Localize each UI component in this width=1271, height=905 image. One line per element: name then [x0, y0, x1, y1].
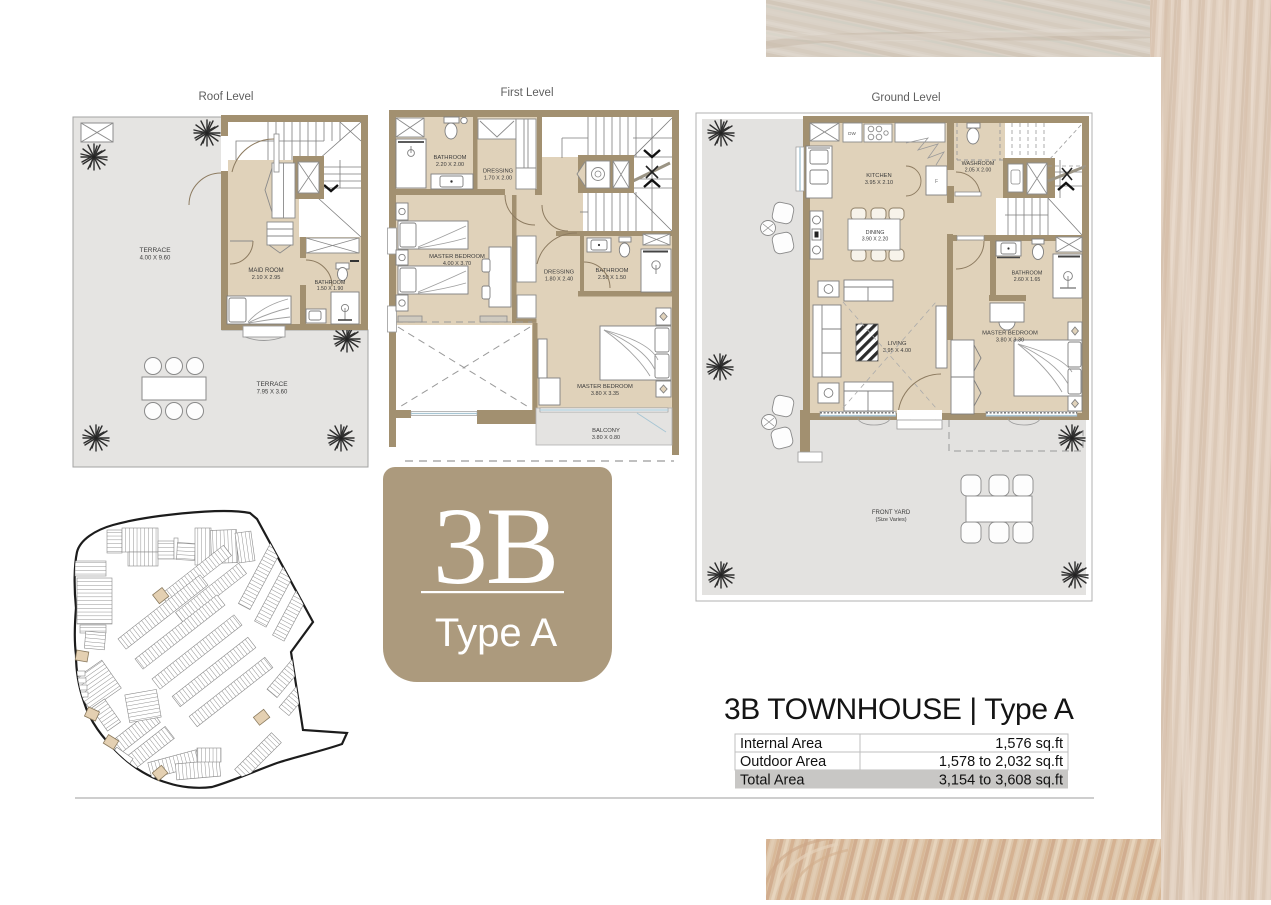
svg-text:MASTER BEDROOM: MASTER BEDROOM [982, 331, 1038, 337]
svg-text:DRESSING: DRESSING [544, 270, 575, 276]
svg-text:3.80 X 3.35: 3.80 X 3.35 [591, 391, 619, 397]
svg-text:DW: DW [848, 131, 856, 136]
svg-text:1,576 sq.ft: 1,576 sq.ft [995, 736, 1063, 752]
svg-text:4.00 X 3.70: 4.00 X 3.70 [443, 261, 471, 267]
svg-text:Ground Level: Ground Level [871, 92, 940, 104]
svg-text:3B: 3B [433, 485, 557, 607]
svg-text:(Size Varies): (Size Varies) [875, 517, 906, 523]
svg-text:Roof Level: Roof Level [199, 91, 254, 103]
svg-text:1.50 X 1.90: 1.50 X 1.90 [317, 286, 344, 292]
svg-text:1,578 to 2,032 sq.ft: 1,578 to 2,032 sq.ft [939, 754, 1063, 770]
svg-text:3.80 X 0.80: 3.80 X 0.80 [592, 435, 620, 441]
svg-text:DINING: DINING [866, 230, 885, 236]
svg-text:2.60 X 1.65: 2.60 X 1.65 [1014, 277, 1041, 283]
svg-text:DRESSING: DRESSING [483, 169, 514, 175]
svg-text:Total Area: Total Area [740, 773, 805, 789]
svg-text:BATHROOM: BATHROOM [433, 155, 466, 161]
svg-text:BATHROOM: BATHROOM [1012, 271, 1043, 277]
svg-text:1.70 X 2.00: 1.70 X 2.00 [484, 176, 512, 182]
svg-text:MASTER BEDROOM: MASTER BEDROOM [429, 254, 485, 260]
svg-text:TERRACE: TERRACE [256, 381, 288, 388]
svg-text:3.80 X 3.30: 3.80 X 3.30 [996, 338, 1024, 344]
svg-text:MASTER BEDROOM: MASTER BEDROOM [577, 384, 633, 390]
svg-text:WASHROOM: WASHROOM [962, 161, 995, 167]
svg-text:Type A: Type A [435, 611, 558, 655]
svg-text:7.95 X 3.60: 7.95 X 3.60 [257, 390, 288, 396]
svg-text:2.05 X 2.00: 2.05 X 2.00 [965, 168, 992, 174]
svg-text:2.50 X 1.50: 2.50 X 1.50 [598, 275, 626, 281]
svg-text:3.95 X 2.10: 3.95 X 2.10 [865, 180, 893, 186]
svg-text:1.80 X 2.40: 1.80 X 2.40 [545, 277, 573, 283]
svg-text:BALCONY: BALCONY [592, 428, 620, 434]
svg-text:KITCHEN: KITCHEN [866, 173, 891, 179]
svg-text:2.20 X 2.00: 2.20 X 2.00 [436, 162, 464, 168]
svg-text:MAID ROOM: MAID ROOM [248, 268, 283, 274]
svg-text:FRONT YARD: FRONT YARD [872, 510, 911, 516]
svg-text:BATHROOM: BATHROOM [595, 268, 628, 274]
svg-text:3.95 X 4.00: 3.95 X 4.00 [883, 348, 911, 354]
svg-text:4.00 X 9.60: 4.00 X 9.60 [140, 256, 171, 262]
svg-text:2.10 X 2.95: 2.10 X 2.95 [252, 275, 281, 281]
svg-text:F: F [935, 179, 938, 185]
svg-text:3.90 X 2.20: 3.90 X 2.20 [862, 237, 889, 243]
svg-text:3,154 to 3,608 sq.ft: 3,154 to 3,608 sq.ft [939, 773, 1063, 789]
svg-text:Internal Area: Internal Area [740, 736, 823, 752]
svg-text:Outdoor Area: Outdoor Area [740, 754, 827, 770]
svg-text:TERRACE: TERRACE [139, 247, 171, 254]
svg-text:3B TOWNHOUSE | Type A: 3B TOWNHOUSE | Type A [724, 693, 1074, 726]
svg-text:First Level: First Level [500, 87, 553, 99]
